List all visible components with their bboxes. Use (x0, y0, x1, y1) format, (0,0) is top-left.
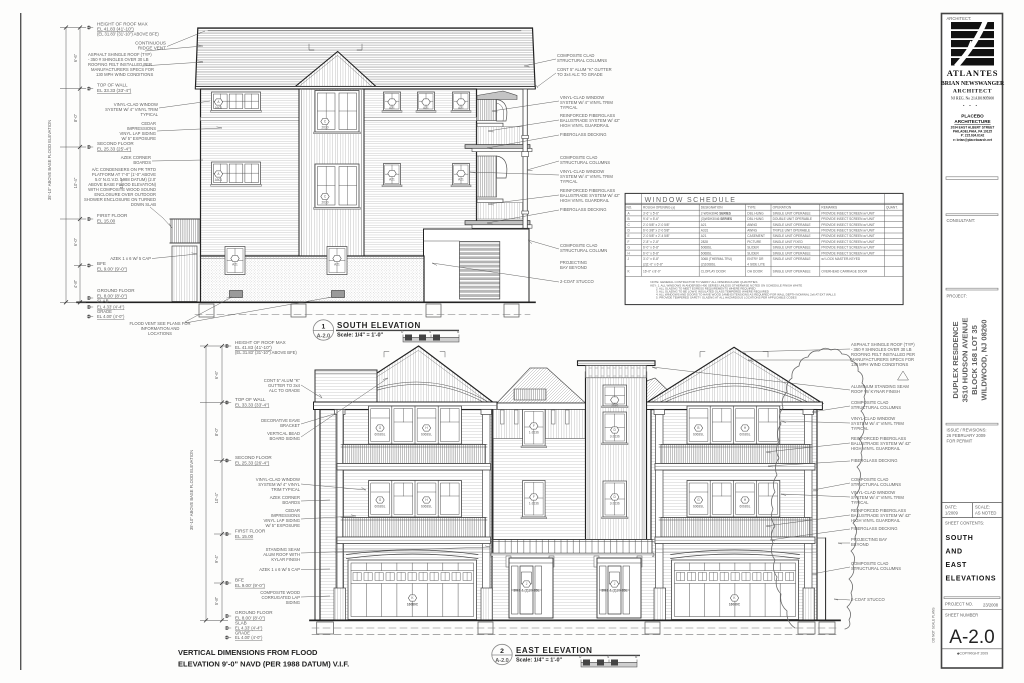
svg-text:6'-0" x 6'-8": 6'-0" x 6'-8" (643, 251, 659, 255)
svg-text:FIRST FLOOR: FIRST FLOOR (97, 213, 128, 218)
svg-text:PICTURE: PICTURE (747, 240, 761, 244)
svg-text:2-COAT STUCCO: 2-COAT STUCCO (851, 597, 886, 602)
svg-text:SECOND FLOOR: SECOND FLOOR (97, 141, 134, 146)
svg-text:STRUCTURAL COLUMNS: STRUCTURAL COLUMNS (851, 405, 901, 410)
svg-text:OVERHEAD CARRIAGE DOOR: OVERHEAD CARRIAGE DOOR (821, 270, 868, 274)
svg-text:TOP OF WALL: TOP OF WALL (97, 83, 128, 88)
svg-text:6068SL: 6068SL (375, 505, 386, 509)
svg-text:A21: A21 (423, 106, 429, 110)
svg-text:23/2008: 23/2008 (983, 603, 999, 608)
svg-text:A501: A501 (215, 106, 223, 110)
svg-text:AWNG: AWNG (747, 223, 757, 227)
svg-text:6'-6": 6'-6" (214, 370, 219, 379)
svg-text:STRUCTURAL COLUMNS: STRUCTURAL COLUMNS (557, 58, 607, 63)
svg-text:16080C: 16080C (729, 603, 741, 607)
svg-text:SINGLE UNIT OPERABLE: SINGLE UNIT OPERABLE (773, 211, 811, 215)
svg-text:TYPICAL: TYPICAL (851, 500, 869, 505)
svg-text:HIGH VINYL GUARDRAIL: HIGH VINYL GUARDRAIL (560, 198, 610, 203)
svg-text:FIBERGLASS DECKING: FIBERGLASS DECKING (851, 458, 898, 463)
svg-text:2'-0 5/8" x 2'-4 5/8": 2'-0 5/8" x 2'-4 5/8" (643, 234, 670, 238)
svg-text:2'-0 5/8" x 2'-0 5/8": 2'-0 5/8" x 2'-0 5/8" (643, 223, 670, 227)
svg-text:OPERATION: OPERATION (773, 206, 792, 210)
svg-text:BRACKET: BRACKET (280, 423, 300, 428)
svg-text:BOARDS: BOARDS (133, 160, 151, 165)
svg-text:3'-0" x 6'-8": 3'-0" x 6'-8" (643, 257, 659, 261)
svg-text:TYPICAL: TYPICAL (560, 179, 578, 184)
svg-text:3-2636: 3-2636 (610, 502, 620, 506)
svg-text:ELEVATIONS: ELEVATIONS (946, 576, 997, 583)
svg-text:TYPICAL: TYPICAL (560, 105, 578, 110)
svg-text:EL 9.00' (9'-0"): EL 9.00' (9'-0") (235, 583, 265, 588)
svg-text:DBL HUNG: DBL HUNG (747, 211, 764, 215)
svg-text:ATLANTES: ATLANTES (947, 68, 999, 78)
svg-text:TRIPLE UNIT OPERABLE: TRIPLE UNIT OPERABLE (773, 229, 811, 233)
svg-text:2030: 2030 (321, 126, 328, 130)
svg-text:3068 & (2)1068SL: 3068 & (2)1068SL (601, 589, 627, 593)
svg-text:PROJECT NO.: PROJECT NO. (945, 602, 973, 607)
svg-text:ARCHITECT: ARCHITECT (953, 89, 992, 95)
svg-text:BRIAN NEWSWANGER: BRIAN NEWSWANGER (941, 81, 1005, 87)
svg-text:130 MPH WIND CONDITIONS: 130 MPH WIND CONDITIONS (96, 72, 153, 77)
svg-text:10'-4": 10'-4" (214, 492, 219, 503)
svg-text:QUANT.: QUANT. (886, 206, 898, 210)
svg-text:F: F (533, 495, 535, 499)
svg-text:EL 15.00: EL 15.00 (97, 218, 116, 223)
svg-text:PROVIDE INSECT SCREEN w/ UNIT: PROVIDE INSECT SCREEN w/ UNIT (821, 217, 874, 221)
svg-text:SECOND FLOOR: SECOND FLOOR (235, 455, 272, 460)
svg-text:DATE:: DATE: (945, 505, 957, 510)
svg-text:PROVIDE INSECT SCREEN w/ UNIT: PROVIDE INSECT SCREEN w/ UNIT (821, 246, 874, 250)
svg-text:DOWN SLAB: DOWN SLAB (131, 202, 156, 207)
svg-text:A21: A21 (389, 106, 395, 110)
svg-text:8'-0": 8'-0" (214, 427, 219, 436)
svg-text:PROJECT:: PROJECT: (947, 294, 967, 299)
svg-text:5. PROVIDE TEMPERED SAFETY GLA: 5. PROVIDE TEMPERED SAFETY GLAZING AT AL… (656, 295, 797, 299)
svg-text:HIGH VINYL GUARDRAIL: HIGH VINYL GUARDRAIL (851, 518, 901, 523)
svg-text:6068SL: 6068SL (701, 251, 712, 255)
svg-text:PROVIDE INSECT SCREEN w/ UNIT: PROVIDE INSECT SCREEN w/ UNIT (821, 211, 874, 215)
svg-text:4 SIDE LITE: 4 SIDE LITE (747, 263, 765, 267)
svg-text:4'-8": 4'-8" (73, 279, 78, 288)
svg-text:SOUTH: SOUTH (946, 535, 974, 542)
svg-text:2828: 2828 (701, 240, 708, 244)
svg-text:SLIDER: SLIDER (747, 251, 759, 255)
svg-text:6068SL: 6068SL (740, 433, 751, 437)
svg-text:A331: A331 (701, 229, 709, 233)
svg-text:NO.: NO. (627, 206, 633, 210)
svg-text:BEYOND: BEYOND (851, 542, 869, 547)
svg-text:PLACEBO: PLACEBO (961, 114, 984, 119)
svg-text:2030: 2030 (321, 201, 328, 205)
svg-text:TYPICAL: TYPICAL (141, 112, 159, 117)
svg-text:(EL 31.83' (31'-10") ABOVE BFE: (EL 31.83' (31'-10") ABOVE BFE) (235, 350, 297, 355)
svg-text:TRIM TYPICAL: TRIM TYPICAL (271, 487, 300, 492)
svg-text:A501: A501 (215, 178, 223, 182)
svg-text:ALC TO GRADE: ALC TO GRADE (269, 388, 300, 393)
svg-text:STRUCTURAL COLUMNS: STRUCTURAL COLUMNS (851, 566, 901, 571)
svg-text:FIRST FLOOR: FIRST FLOOR (235, 529, 266, 534)
svg-text:DESIGNATION: DESIGNATION (701, 206, 723, 210)
svg-text:6068SL: 6068SL (421, 433, 432, 437)
svg-text:6'-0 3/8" x 2'-0 5/8": 6'-0 3/8" x 2'-0 5/8" (643, 229, 670, 233)
svg-text:SINGLE UNIT OPERABLE: SINGLE UNIT OPERABLE (773, 234, 811, 238)
svg-text:PROVIDE INSECT SCREEN w/ UNIT: PROVIDE INSECT SCREEN w/ UNIT (821, 223, 874, 227)
svg-text:AND: AND (946, 549, 963, 556)
svg-text:A-2.0: A-2.0 (495, 658, 508, 664)
svg-text:6068SL: 6068SL (740, 505, 751, 509)
svg-text:EL 9.00' (9'-0"): EL 9.00' (9'-0") (97, 266, 127, 271)
svg-text:2'-8" x 2'-8": 2'-8" x 2'-8" (643, 240, 659, 244)
svg-text:PROVIDE INSECT SCREEN w/ UNIT: PROVIDE INSECT SCREEN w/ UNIT (821, 240, 874, 244)
svg-text:GROUND FLOOR: GROUND FLOOR (235, 610, 273, 615)
svg-text:EAST: EAST (946, 562, 967, 569)
svg-text:E: E (628, 234, 630, 238)
svg-text:130 MPH WIND CONDITIONS: 130 MPH WIND CONDITIONS (851, 362, 908, 367)
svg-text:ROUGH OPENING (±): ROUGH OPENING (±) (643, 206, 675, 210)
svg-text:EL 33.33 (33'-4"): EL 33.33 (33'-4") (235, 402, 270, 407)
svg-text:A21: A21 (701, 234, 707, 238)
svg-text:6068SL: 6068SL (693, 433, 704, 437)
svg-text:EL 15.00: EL 15.00 (235, 534, 254, 539)
svg-text:CONSULTANT:: CONSULTANT: (947, 218, 975, 223)
svg-text:GROUND FLOOR: GROUND FLOOR (97, 288, 135, 293)
svg-text:35'-10" ABOVE BASE FLOOD ELEVA: 35'-10" ABOVE BASE FLOOD ELEVATION (189, 450, 194, 530)
svg-text:3510 HUDSON AVENUE: 3510 HUDSON AVENUE (961, 318, 970, 403)
svg-text:STRUCTURAL COLUMN: STRUCTURAL COLUMN (560, 248, 607, 253)
svg-text:(2)1068SL: (2)1068SL (701, 263, 716, 267)
svg-text:35'-10" ABOVE BASE FLOOD ELEVA: 35'-10" ABOVE BASE FLOOD ELEVATION (47, 120, 52, 200)
svg-text:EL 25.33 (25'-4"): EL 25.33 (25'-4") (97, 146, 132, 151)
svg-text:EL 33.33 (33'-4"): EL 33.33 (33'-4") (97, 88, 132, 93)
svg-text:A21: A21 (232, 262, 238, 266)
svg-text:ARCHITECT:: ARCHITECT: (947, 16, 972, 21)
svg-text:FOR PERMIT: FOR PERMIT (947, 439, 973, 444)
svg-text:2636: 2636 (611, 404, 618, 408)
svg-text:SLIDER: SLIDER (747, 246, 759, 250)
svg-text:STRUCTURAL COLUMNS: STRUCTURAL COLUMNS (560, 160, 610, 165)
svg-text:SIDING: SIDING (286, 600, 300, 605)
svg-text:(3)WDH3046 SERIES: (3)WDH3046 SERIES (701, 217, 732, 221)
svg-text:ROOF W/ KYNAR FINISH: ROOF W/ KYNAR FINISH (851, 389, 900, 394)
svg-text:DOUBLE UNIT OPERABLE: DOUBLE UNIT OPERABLE (773, 217, 812, 221)
svg-text:DUPLEX RESIDENCE: DUPLEX RESIDENCE (951, 321, 960, 398)
svg-text:VERTICAL DIMENSIONS FROM FLOOD: VERTICAL DIMENSIONS FROM FLOOD (178, 648, 318, 657)
svg-text:3'-6" x 5'-6": 3'-6" x 5'-6" (643, 211, 659, 215)
svg-text:BFE: BFE (97, 261, 106, 266)
svg-text:1: 1 (322, 324, 326, 331)
svg-text:AWNG: AWNG (747, 229, 757, 233)
svg-text:DO NOT SCALE PLANS: DO NOT SCALE PLANS (932, 607, 936, 642)
svg-text:A21: A21 (458, 177, 464, 181)
svg-text:REMARKS: REMARKS (821, 206, 837, 210)
svg-text:EL 25.33 (26'-4"): EL 25.33 (26'-4") (235, 460, 270, 465)
svg-text:AZEK 1 x 6 W/ 5 CAP: AZEK 1 x 6 W/ 5 CAP (259, 567, 300, 572)
svg-text:BLOCK 168 LOT 35: BLOCK 168 LOT 35 (970, 324, 979, 394)
svg-text:SINGLE UNIT OPERABLE: SINGLE UNIT OPERABLE (773, 251, 811, 255)
svg-text:6'-0" x 6'-8": 6'-0" x 6'-8" (643, 246, 659, 250)
svg-text:ISSUE / REVISIONS:: ISSUE / REVISIONS: (947, 428, 987, 433)
svg-text:PROVIDE INSECT SCREEN w/ UNIT: PROVIDE INSECT SCREEN w/ UNIT (821, 251, 874, 255)
svg-text:PROVIDE INSECT SCREEN w/ UNIT: PROVIDE INSECT SCREEN w/ UNIT (821, 234, 874, 238)
svg-text:26 FEBRUARY 2009: 26 FEBRUARY 2009 (947, 433, 987, 438)
svg-text:SINGLE UNIT OPERABLE: SINGLE UNIT OPERABLE (773, 223, 811, 227)
svg-text:ARCHITECTURE: ARCHITECTURE (954, 119, 990, 124)
svg-text:1/2009: 1/2009 (945, 511, 958, 516)
svg-text:OH DOOR: OH DOOR (747, 270, 763, 274)
svg-text:5'-8": 5'-8" (214, 596, 219, 605)
svg-text:TO 3x4 ALC TO GRADE: TO 3x4 ALC TO GRADE (557, 72, 603, 77)
svg-text:1-2636: 1-2636 (529, 431, 539, 435)
svg-text:WILDWOOD, NJ 08260: WILDWOOD, NJ 08260 (980, 319, 989, 400)
svg-text:e: brian@placeboarch.net: e: brian@placeboarch.net (953, 138, 993, 142)
svg-text:FIBERGLASS DECKING: FIBERGLASS DECKING (560, 207, 607, 212)
svg-text:SHEET NUMBER: SHEET NUMBER (945, 613, 978, 618)
svg-text:3068 & (2)1068SL: 3068 & (2)1068SL (513, 589, 539, 593)
svg-text:TOP OF WALL: TOP OF WALL (235, 397, 266, 402)
svg-text:TYPICAL: TYPICAL (851, 426, 869, 431)
svg-text:A21: A21 (458, 106, 464, 110)
svg-text:◆COPYRIGHT 2009: ◆COPYRIGHT 2009 (957, 652, 988, 656)
svg-text:9'-4": 9'-4" (214, 554, 219, 563)
svg-text:ELEVATION 9'-0" NAVD (PER 1988: ELEVATION 9'-0" NAVD (PER 1988 DATUM) V.… (178, 660, 349, 669)
svg-text:SINGLE UNIT OPERABLE: SINGLE UNIT OPERABLE (773, 246, 811, 250)
svg-text:9'-6" x 5'-6": 9'-6" x 5'-6" (643, 217, 659, 221)
svg-text:16080C: 16080C (407, 603, 419, 607)
svg-text:▪▪▪: ▪▪▪ (963, 104, 982, 108)
svg-text:CASEMENT: CASEMENT (747, 234, 765, 238)
svg-text:Scale: 1/4" = 1'-0": Scale: 1/4" = 1'-0" (516, 658, 563, 664)
svg-text:A21: A21 (334, 262, 340, 266)
svg-text:SINGLE UNIT OPERABLE: SINGLE UNIT OPERABLE (773, 257, 811, 261)
svg-text:6068SL: 6068SL (693, 505, 704, 509)
svg-text:3068 (THERMA-TRU): 3068 (THERMA-TRU) (701, 257, 732, 261)
svg-text:SINGLE UNIT FIXED: SINGLE UNIT FIXED (773, 240, 804, 244)
svg-text:B: B (628, 217, 630, 221)
svg-text:W/ 5" EXPOSURE: W/ 5" EXPOSURE (265, 523, 300, 528)
svg-text:6068SL: 6068SL (701, 246, 712, 250)
svg-text:FIBERGLASS DECKING: FIBERGLASS DECKING (560, 132, 607, 137)
svg-text:P: 215.634.6142: P: 215.634.6142 (961, 134, 985, 138)
svg-text:BOARDS: BOARDS (282, 500, 300, 505)
svg-text:AS NOTED: AS NOTED (975, 511, 996, 516)
svg-text:DBL HUNG: DBL HUNG (747, 217, 764, 221)
svg-text:6'-0": 6'-0" (73, 237, 78, 246)
svg-text:AZEK 1 x 6 W/ 5 CAP: AZEK 1 x 6 W/ 5 CAP (110, 256, 151, 261)
svg-text:2: 2 (500, 648, 504, 655)
svg-text:10'-4": 10'-4" (73, 177, 78, 188)
svg-text:SLAB: SLAB (97, 298, 109, 303)
svg-text:2-COAT STUCCO: 2-COAT STUCCO (560, 279, 595, 284)
svg-text:EL 4.00' (4'-0"): EL 4.00' (4'-0") (97, 314, 125, 319)
svg-text:3-2636: 3-2636 (610, 435, 620, 439)
svg-text:BAY BEYOND: BAY BEYOND (560, 265, 587, 270)
svg-text:6068SL: 6068SL (375, 433, 386, 437)
svg-text:A-2.0: A-2.0 (949, 627, 994, 648)
svg-text:CLOPLAY DOOR: CLOPLAY DOOR (701, 270, 727, 274)
svg-text:w/ LOCK MASTER-KEYED: w/ LOCK MASTER-KEYED (821, 257, 860, 261)
svg-text:Scale: 1/4" = 1'-0": Scale: 1/4" = 1'-0" (337, 333, 384, 339)
svg-text:KYLAR FINISH: KYLAR FINISH (271, 557, 300, 562)
svg-text:NJ REG. No 21AI01805900: NJ REG. No 21AI01805900 (951, 97, 994, 101)
svg-text:STRUCTURAL COLUMNS: STRUCTURAL COLUMNS (851, 482, 901, 487)
svg-text:SINGLE UNIT OPERABLE: SINGLE UNIT OPERABLE (773, 270, 811, 274)
svg-text:LOCATIONS: LOCATIONS (148, 331, 172, 336)
svg-text:6'-6": 6'-6" (73, 53, 78, 62)
svg-text:BFE: BFE (235, 578, 244, 583)
svg-text:EL 4.00' (4'-0"): EL 4.00' (4'-0") (235, 635, 263, 640)
svg-text:SOUTH ELEVATION: SOUTH ELEVATION (337, 321, 421, 330)
svg-text:8'-0": 8'-0" (73, 113, 78, 122)
svg-text:(2)1'-0" x 6'-8": (2)1'-0" x 6'-8" (643, 263, 663, 267)
svg-text:FIBERGLASS DECKING: FIBERGLASS DECKING (851, 526, 898, 531)
svg-text:A21: A21 (389, 177, 395, 181)
svg-text:8: 8 (457, 329, 460, 334)
svg-text:PROVIDE INSECT SCREEN w/ UNIT: PROVIDE INSECT SCREEN w/ UNIT (821, 229, 874, 233)
svg-text:F: F (628, 240, 630, 244)
svg-text:(EL 31.83' (31'-10") ABOVE BFE: (EL 31.83' (31'-10") ABOVE BFE) (97, 32, 159, 37)
svg-text:F: F (533, 424, 535, 428)
svg-text:BOARD SIDING: BOARD SIDING (270, 436, 300, 441)
svg-text:A-2.0: A-2.0 (317, 334, 330, 340)
svg-text:16'-0" x 8'-0": 16'-0" x 8'-0" (643, 270, 661, 274)
svg-text:SCALE:: SCALE: (975, 505, 990, 510)
svg-text:TYPE: TYPE (747, 206, 755, 210)
svg-text:HIGH VINYL GUARDRAIL: HIGH VINYL GUARDRAIL (560, 123, 610, 128)
svg-text:1-2636: 1-2636 (529, 502, 539, 506)
svg-text:SHEET CONTENTS:: SHEET CONTENTS: (945, 521, 984, 526)
svg-text:HIGH VINYL GUARDRAIL: HIGH VINYL GUARDRAIL (851, 446, 901, 451)
svg-text:ENTRY DR: ENTRY DR (747, 257, 764, 261)
svg-text:2-WDH3046 SERIES: 2-WDH3046 SERIES (701, 211, 731, 215)
svg-text:6068SL: 6068SL (421, 505, 432, 509)
svg-text:B: B (697, 426, 699, 430)
svg-text:A21: A21 (701, 223, 707, 227)
